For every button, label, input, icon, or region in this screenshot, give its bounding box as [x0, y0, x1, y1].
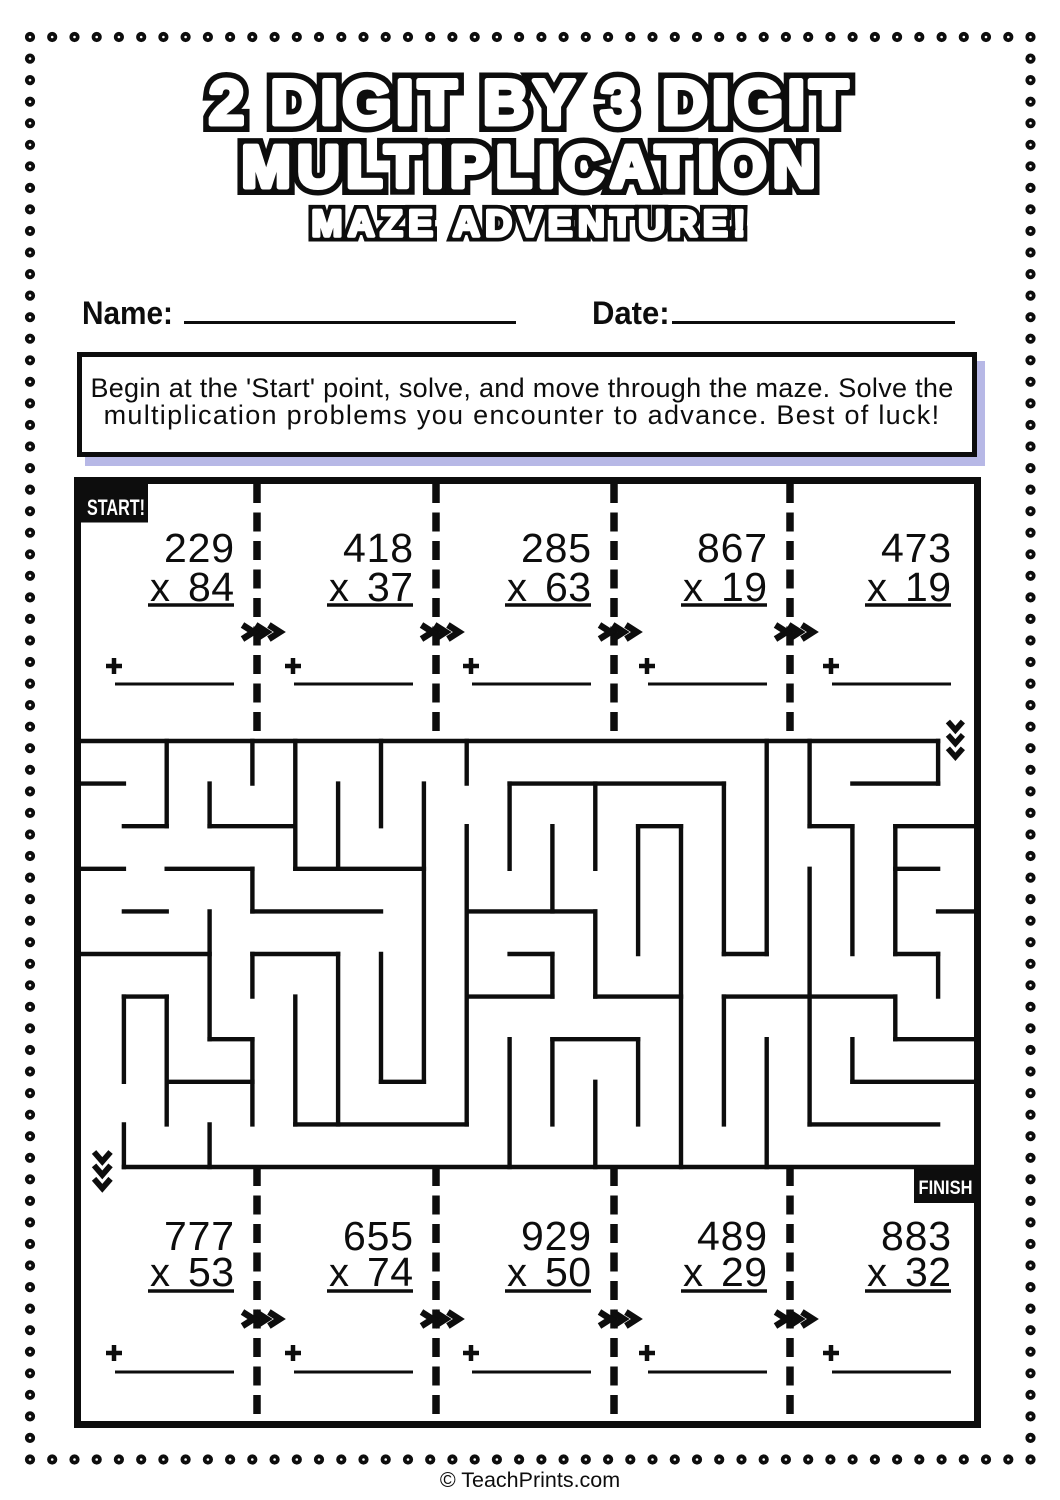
svg-text:53: 53	[188, 1249, 234, 1295]
svg-text:29: 29	[721, 1249, 767, 1295]
svg-text:x: x	[507, 1251, 527, 1295]
svg-text:84: 84	[188, 564, 234, 610]
svg-text:74: 74	[367, 1249, 413, 1295]
svg-text:32: 32	[905, 1249, 951, 1295]
svg-text:37: 37	[367, 564, 413, 610]
svg-text:50: 50	[545, 1249, 591, 1295]
svg-text:19: 19	[905, 564, 951, 610]
svg-text:x: x	[683, 1251, 703, 1295]
svg-text:x: x	[150, 1251, 170, 1295]
svg-text:63: 63	[545, 564, 591, 610]
svg-text:19: 19	[721, 564, 767, 610]
svg-text:x: x	[329, 1251, 349, 1295]
svg-text:x: x	[867, 1251, 887, 1295]
